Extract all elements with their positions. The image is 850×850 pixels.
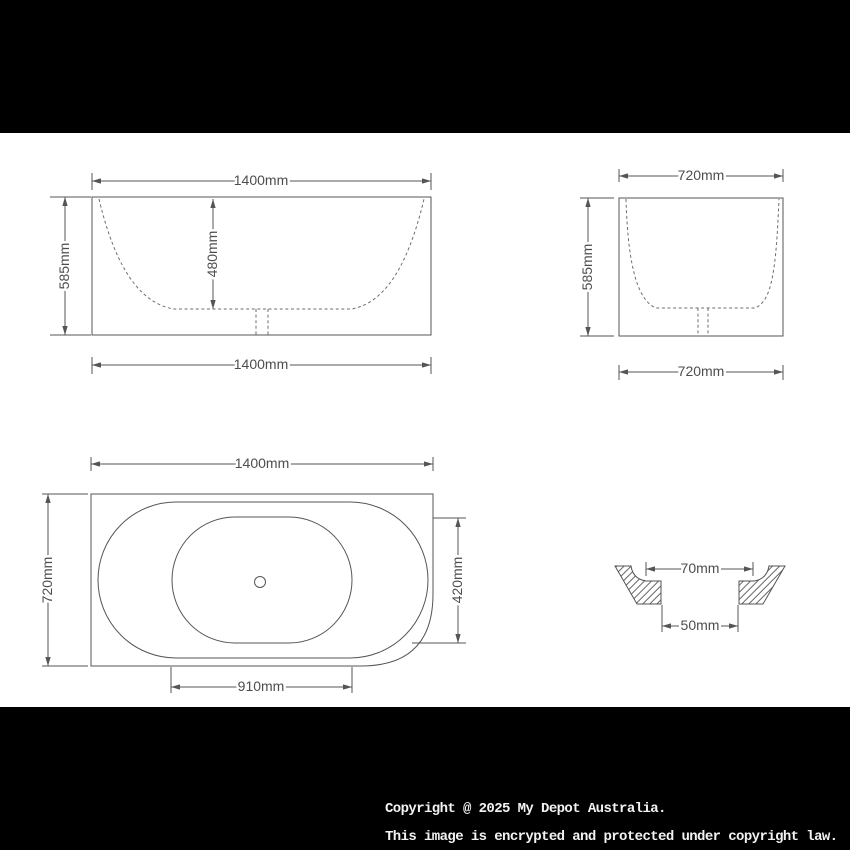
side-elevation-view: 720mm 585mm 720mm	[579, 167, 783, 380]
drain-bottom-dimension-label: 50mm	[681, 617, 720, 633]
side-inner-bowl-dashed	[626, 199, 779, 308]
front-inner-bowl-dashed	[99, 199, 424, 309]
side-drain-hidden-lines	[698, 308, 708, 336]
plan-inner-bowl-contour	[172, 517, 352, 643]
plan-top-dimension-label: 1400mm	[235, 455, 289, 471]
front-elevation-view: 1400mm 585mm 480mm 1400mm	[50, 172, 431, 374]
technical-drawing: 1400mm 585mm 480mm 1400mm 720mm	[0, 133, 850, 707]
drawing-sheet: 1400mm 585mm 480mm 1400mm 720mm	[0, 133, 850, 707]
plan-bottom-dimension-label: 910mm	[238, 678, 285, 694]
plan-right-dimension-label: 420mm	[449, 557, 465, 604]
front-bottom-dimension-label: 1400mm	[234, 356, 288, 372]
front-top-dimension-label: 1400mm	[234, 172, 288, 188]
plan-view: 1400mm 720mm 420mm 910mm	[39, 455, 466, 694]
front-drain-hidden-lines	[256, 309, 268, 335]
side-tub-outline	[619, 198, 783, 336]
drain-detail-view: 70mm 50mm	[615, 560, 785, 633]
page-background: 1400mm 585mm 480mm 1400mm 720mm	[0, 0, 850, 850]
drain-top-dimension-label: 70mm	[681, 560, 720, 576]
copyright-line-2: This image is encrypted and protected un…	[385, 823, 837, 850]
side-bottom-dimension-label: 720mm	[678, 363, 725, 379]
copyright-line-1: Copyright @ 2025 My Depot Australia.	[385, 795, 837, 823]
front-tub-outline	[92, 197, 431, 335]
plan-drain-hole	[255, 577, 266, 588]
drain-section-right-wall	[739, 566, 785, 604]
side-left-dimension-label: 585mm	[579, 244, 595, 291]
drain-section-left-wall	[615, 566, 661, 604]
plan-rim-contour	[98, 502, 428, 658]
side-top-dimension-label: 720mm	[678, 167, 725, 183]
front-depth-dimension-label: 480mm	[204, 231, 220, 278]
plan-tub-outline	[91, 494, 433, 666]
plan-left-dimension-label: 720mm	[39, 557, 55, 604]
front-left-dimension-label: 585mm	[56, 243, 72, 290]
copyright-notice: Copyright @ 2025 My Depot Australia. Thi…	[385, 795, 837, 850]
